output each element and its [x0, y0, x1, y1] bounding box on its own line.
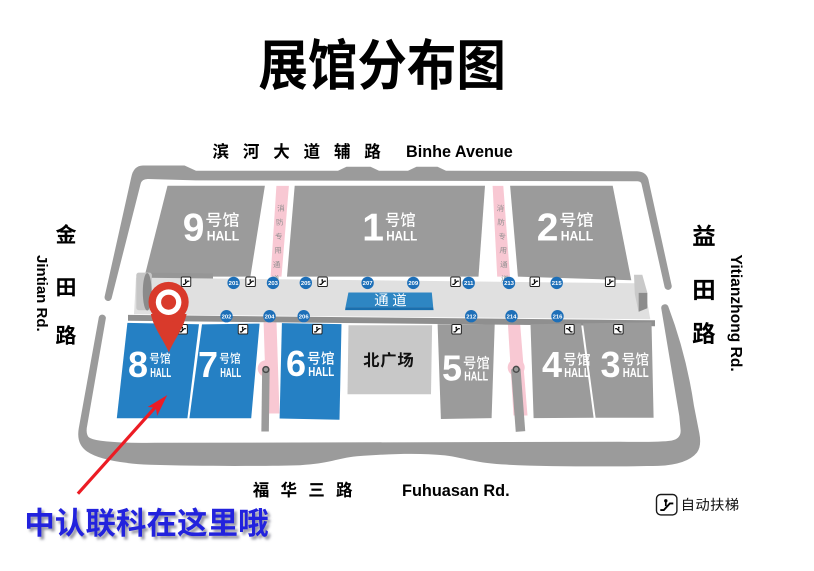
svg-text:HALL: HALL [386, 229, 417, 244]
svg-text:215: 215 [552, 281, 563, 287]
svg-text:HALL: HALL [207, 229, 240, 244]
svg-text:213: 213 [504, 281, 515, 287]
svg-text:HALL: HALL [308, 364, 334, 379]
svg-text:1: 1 [362, 207, 384, 250]
svg-text:216: 216 [553, 314, 564, 320]
svg-text:214: 214 [507, 314, 518, 320]
svg-text:201: 201 [229, 281, 240, 287]
svg-text:HALL: HALL [623, 365, 649, 380]
svg-text:Fuhuasan Rd.: Fuhuasan Rd. [402, 482, 510, 500]
svg-text:Binhe Avenue: Binhe Avenue [406, 143, 513, 161]
svg-text:Jintian Rd.: Jintian Rd. [33, 255, 50, 332]
svg-text:HALL: HALL [561, 229, 594, 244]
svg-text:4: 4 [542, 344, 562, 385]
svg-text:206: 206 [299, 314, 310, 320]
svg-text:7: 7 [198, 344, 218, 385]
svg-text:202: 202 [222, 314, 233, 320]
svg-text:HALL: HALL [464, 369, 488, 384]
svg-text:HALL: HALL [220, 365, 241, 380]
svg-text:203: 203 [268, 281, 279, 287]
svg-text:Yitianzhong Rd.: Yitianzhong Rd. [727, 255, 744, 372]
svg-text:9: 9 [183, 207, 205, 250]
svg-text:211: 211 [464, 281, 474, 287]
svg-text:8: 8 [128, 344, 148, 385]
svg-text:5: 5 [442, 348, 462, 389]
svg-text:2: 2 [537, 207, 559, 250]
svg-text:207: 207 [363, 281, 374, 287]
svg-text:6: 6 [286, 343, 306, 384]
svg-text:212: 212 [466, 314, 477, 320]
svg-text:3: 3 [600, 344, 620, 385]
svg-text:205: 205 [301, 281, 312, 287]
svg-text:204: 204 [265, 314, 276, 320]
svg-text:HALL: HALL [150, 365, 171, 380]
svg-text:209: 209 [408, 281, 419, 287]
svg-text:HALL: HALL [564, 365, 590, 380]
